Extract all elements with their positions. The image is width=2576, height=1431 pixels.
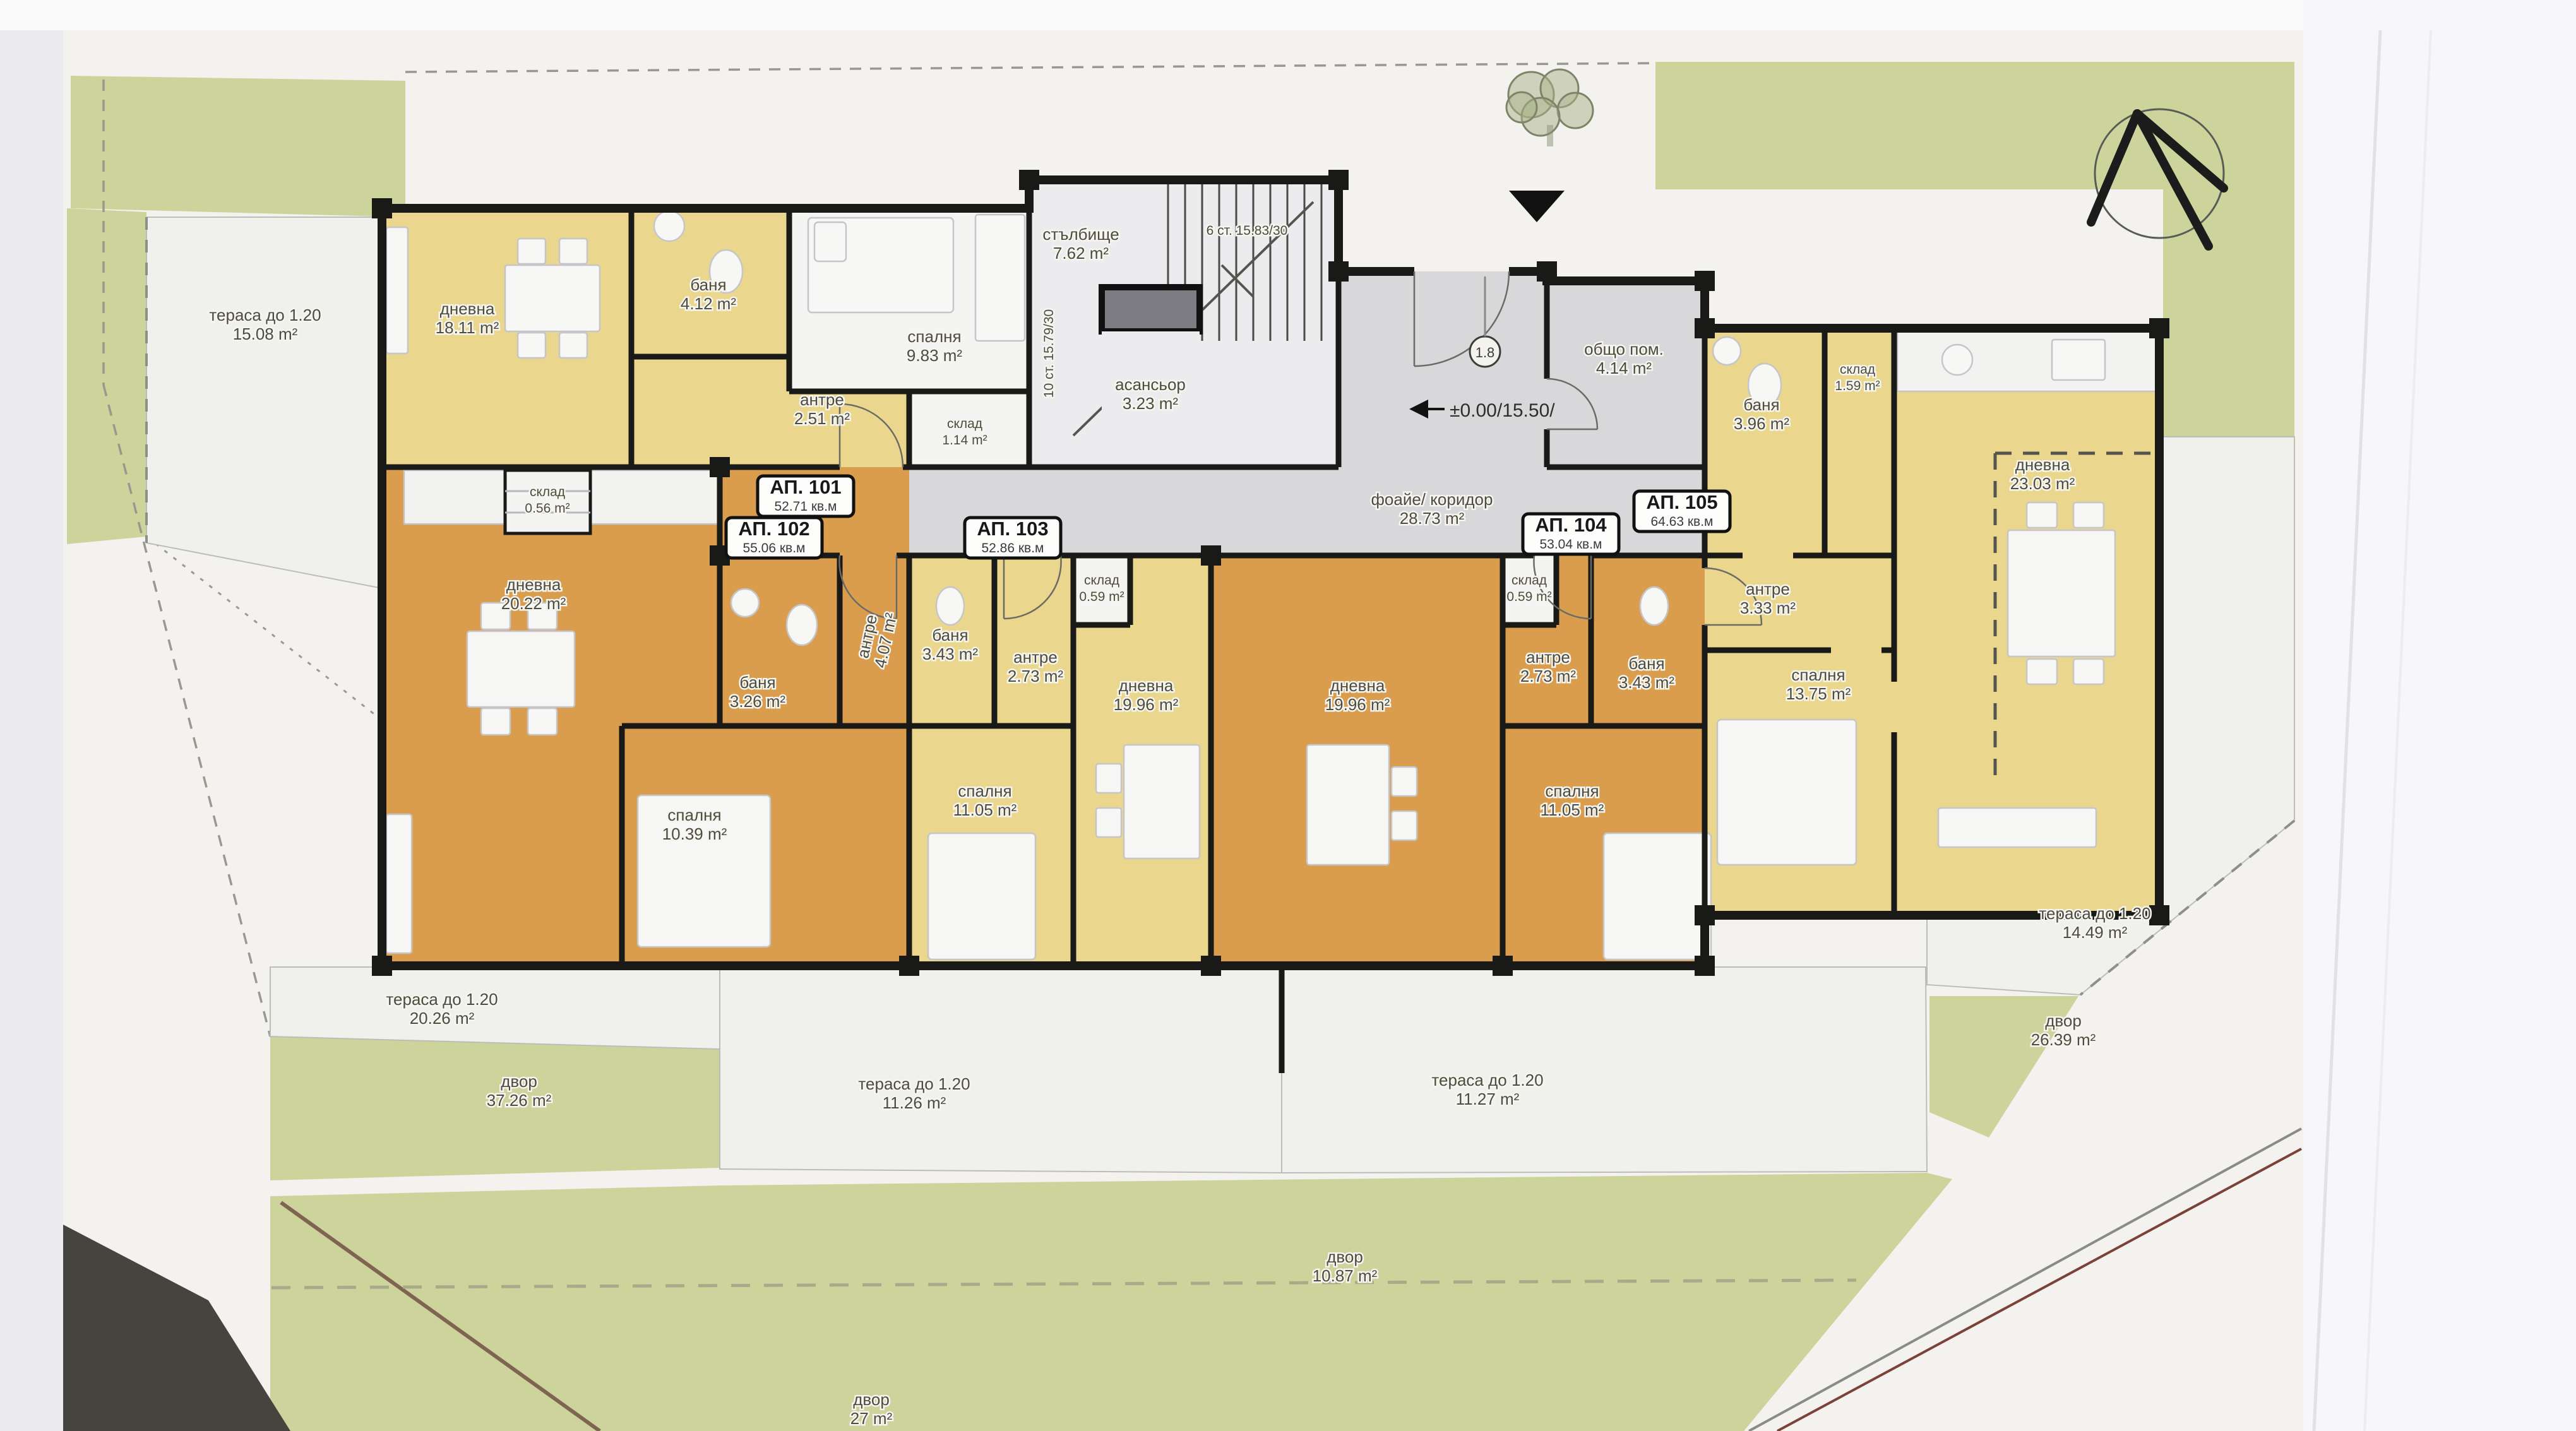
apt-102-bedroom-label: спалня10.39 m² <box>662 805 727 843</box>
apt-101-total: 52.71 кв.м <box>774 499 837 514</box>
apt-105-bedroom-label: спалня13.75 m² <box>1786 665 1851 703</box>
level-badge-text: 1.8 <box>1476 345 1495 360</box>
common-room-label: общо пом.4.14 m² <box>1584 340 1664 377</box>
apt-102-id: АП. 102 <box>738 518 809 540</box>
entry-hall-fill <box>1339 271 1547 467</box>
terrace-s1 <box>720 967 1282 1173</box>
apt-101-bedroom-label: спалня9.83 m² <box>907 327 962 365</box>
yard-s-label: двор27 m² <box>850 1390 893 1428</box>
stairwell-label: стълбище7.62 m² <box>1042 225 1119 263</box>
terrace-s2 <box>1282 967 1927 1173</box>
green-top-left <box>71 76 405 217</box>
apt-104-living-label: дневна19.96 m² <box>1325 676 1390 714</box>
apt-103-bedroom-label: спалня11.05 m² <box>953 781 1017 819</box>
apt-105-hall-label: антре3.33 m² <box>1740 579 1796 617</box>
apt-104-bedroom-label: спалня11.05 m² <box>1541 781 1604 819</box>
apt-101-living-label: дневна18.11 m² <box>436 299 499 337</box>
apt-103-hall-label: антре2.73 m² <box>1008 648 1063 686</box>
elevator-label: асансьор3.23 m² <box>1115 375 1186 413</box>
apt-102-total: 55.06 кв.м <box>742 541 805 555</box>
apt-104-hall-label: антре2.73 m² <box>1520 648 1576 686</box>
apt-103-living-label: дневна19.96 m² <box>1114 676 1179 714</box>
apt-104-label-box: АП. 104 53.04 кв.м <box>1523 514 1619 554</box>
apt-102-label-box: АП. 102 55.06 кв.м <box>726 518 822 558</box>
apt-105-living-label: дневна23.03 m² <box>2010 455 2075 493</box>
floorplan-photo: АП. 101 52.71 кв.м АП. 102 55.06 кв.м АП… <box>0 0 2576 1431</box>
green-left-strip <box>67 208 146 544</box>
apt-105-label-box: АП. 105 64.63 кв.м <box>1634 491 1730 531</box>
apt-103-id: АП. 103 <box>977 518 1048 540</box>
apt-105-total: 64.63 кв.м <box>1650 514 1713 529</box>
apt-101-hall-label: антре2.51 m² <box>794 390 850 428</box>
apt-105-kitchen-counter <box>1897 331 2159 391</box>
green-yard-south <box>270 1173 1952 1431</box>
apt-104-total: 53.04 кв.м <box>1539 537 1602 552</box>
apt-101-label-box: АП. 101 52.71 кв.м <box>758 476 854 516</box>
apt-105-id: АП. 105 <box>1646 491 1717 513</box>
apt-101-id: АП. 101 <box>770 476 841 498</box>
apt-103-label-box: АП. 103 52.86 кв.м <box>965 518 1061 558</box>
apt-102-living-label: дневна20.22 m² <box>501 575 566 613</box>
terrace-left <box>146 217 382 588</box>
stair-run-top-label: 6 ст. 15.83/30 <box>1207 223 1288 238</box>
apt-103-total: 52.86 кв.м <box>981 541 1044 555</box>
elevation-text: ±0.00/15.50/ <box>1450 400 1555 421</box>
stair-run-side-label: 10 ст. 15.79/30 <box>1042 309 1056 398</box>
green-right-strip <box>2163 189 2294 437</box>
elevator-shaft <box>1102 287 1200 331</box>
apt-104-id: АП. 104 <box>1535 514 1607 536</box>
